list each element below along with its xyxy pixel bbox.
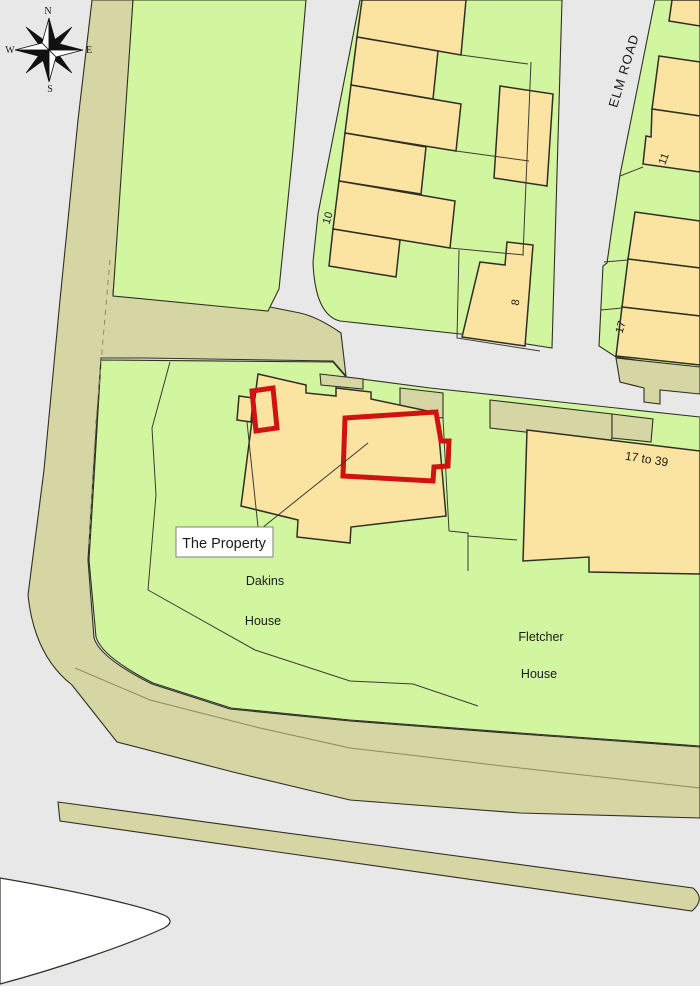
dakins-house-label-line1: Dakins: [246, 574, 284, 588]
verge-piece-fletcher-north: [612, 414, 653, 442]
map-canvas: The Property Dakins House Fletcher House…: [0, 0, 700, 986]
building-number-17: [616, 307, 700, 365]
fletcher-house-building: [523, 430, 700, 574]
green-parcel-northwest: [113, 0, 306, 311]
fletcher-house-label-line2: House: [521, 667, 557, 681]
building-east-row: [652, 56, 700, 116]
site-plan-map: The Property Dakins House Fletcher House…: [0, 0, 700, 986]
compass-label-east: E: [86, 45, 92, 56]
fletcher-house-label-line1: Fletcher: [518, 630, 563, 644]
property-label: The Property: [182, 536, 267, 552]
compass-label-south: S: [47, 84, 53, 95]
compass-label-west: W: [5, 45, 15, 56]
building-east-row: [622, 259, 700, 316]
compass-label-north: N: [44, 6, 51, 17]
building-east-corner: [669, 0, 700, 26]
building-east-of-terrace: [494, 86, 553, 186]
building-number-11: [643, 109, 700, 172]
dakins-house-label-line2: House: [245, 614, 281, 628]
